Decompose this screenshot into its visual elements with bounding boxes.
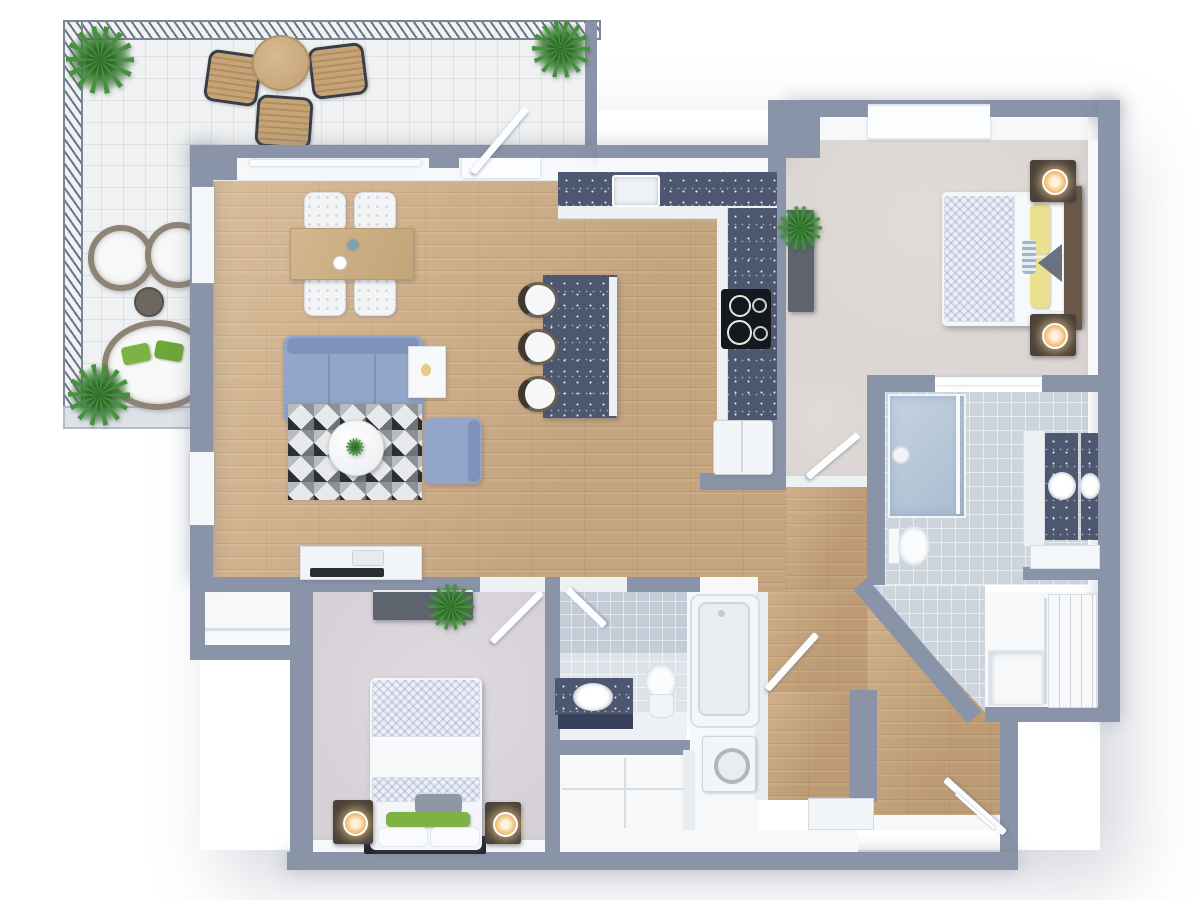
bed-pillow-white xyxy=(430,827,480,847)
cooktop-burner xyxy=(727,320,752,345)
balcony-window xyxy=(250,160,420,166)
wall-post xyxy=(429,145,459,168)
vanity-sink xyxy=(1048,472,1076,500)
wall-post xyxy=(190,145,237,180)
potted-plant xyxy=(532,20,590,78)
bar-stool xyxy=(518,376,558,412)
table-vase xyxy=(348,240,358,250)
island-face xyxy=(609,277,617,416)
shower-head xyxy=(892,446,910,464)
storage-divider xyxy=(624,758,626,828)
kitchen-sink xyxy=(612,175,660,207)
closet-floor xyxy=(205,592,290,648)
nightstand-lamp xyxy=(493,812,518,837)
side-table-decor xyxy=(421,364,431,376)
cooktop-burner xyxy=(729,295,751,317)
hall-closet-floor xyxy=(767,692,850,800)
cooktop-burner xyxy=(752,298,767,313)
refrigerator xyxy=(713,420,773,475)
vestibule-threshold xyxy=(786,476,867,487)
wall-top-living xyxy=(190,145,597,158)
hall-floor xyxy=(786,485,867,592)
tv xyxy=(310,568,384,577)
west-window xyxy=(190,452,214,525)
bath2-vanity-lower xyxy=(558,714,633,729)
wall-bathroom2-bottom xyxy=(545,740,690,755)
west-balcony-door xyxy=(192,187,214,283)
console-decor xyxy=(352,550,384,566)
bed-pillow-white xyxy=(378,827,428,847)
headboard xyxy=(1064,186,1082,330)
kitchen-counter-top xyxy=(558,172,777,208)
bathtub-basin xyxy=(698,602,750,716)
bed-fold xyxy=(372,736,480,778)
wall-face-tub-top xyxy=(700,577,758,592)
washer-door xyxy=(714,748,750,784)
wicker-chair xyxy=(88,225,154,291)
wall-bedroom2-west xyxy=(290,580,313,852)
wall-laundry-divider xyxy=(683,750,695,830)
wall-bedroom1-bottom xyxy=(1042,375,1098,392)
bedroom1-window xyxy=(868,104,990,140)
nightstand-lamp xyxy=(343,811,368,836)
outdoor-chair xyxy=(307,42,369,100)
sofa-back xyxy=(287,338,419,354)
bathtub-drain xyxy=(718,610,725,617)
wall-face-bottom xyxy=(558,830,858,852)
toilet-bowl xyxy=(898,526,930,566)
balcony-railing-top xyxy=(63,20,601,40)
wall-face-east xyxy=(1088,140,1098,378)
table-plate xyxy=(333,256,347,270)
cooktop-burner xyxy=(753,326,768,341)
outdoor-chair xyxy=(254,94,313,150)
wall-closet-south xyxy=(190,645,290,660)
nightstand-lamp xyxy=(1042,169,1068,195)
dining-chair xyxy=(304,276,346,316)
vanity-sink xyxy=(1080,473,1100,499)
dresser-plant xyxy=(428,584,474,630)
potted-plant xyxy=(68,364,130,426)
refrigerator-seam xyxy=(741,421,743,472)
bed-pillow-green xyxy=(386,812,470,827)
sideboard-plant xyxy=(778,206,822,250)
bar-stool xyxy=(518,329,558,365)
wall-bedroom1-bottom xyxy=(867,375,935,392)
dining-table xyxy=(290,228,414,280)
potted-plant xyxy=(66,26,134,94)
coffee-table-plant xyxy=(346,438,364,456)
outdoor-table xyxy=(252,35,310,91)
hall-closet-shelf xyxy=(808,798,874,830)
bed-pillow-accent xyxy=(1022,240,1036,274)
wall-east xyxy=(1098,100,1120,722)
wall-bottom xyxy=(287,852,1018,870)
wall-corner xyxy=(768,100,820,158)
vanity-cabinet xyxy=(1023,430,1045,547)
bedroom2-door-threshold xyxy=(480,577,545,592)
bed-duvet xyxy=(944,196,1018,322)
wall-hallcloset-east xyxy=(850,690,877,802)
side-table xyxy=(134,287,164,317)
bath2-sink xyxy=(573,683,613,711)
dining-chair xyxy=(304,192,346,232)
wall-entry-east xyxy=(1000,707,1018,870)
wall-bath-west xyxy=(867,392,885,585)
armchair-back xyxy=(468,420,480,482)
dining-chair xyxy=(354,276,396,316)
closet-bench xyxy=(988,650,1044,706)
floor-plan-render xyxy=(0,0,1200,900)
wardrobe xyxy=(1048,594,1097,708)
nightstand-lamp xyxy=(1042,323,1068,349)
closet-rod xyxy=(1044,598,1047,704)
bath2-toilet-seat xyxy=(649,694,674,718)
bed-pillow-gray xyxy=(415,794,462,814)
dining-chair xyxy=(354,192,396,232)
vanity-bench xyxy=(1030,545,1100,569)
wall-top-kitchen xyxy=(597,145,786,158)
shower-glass xyxy=(956,394,960,514)
closet-shelf-edge xyxy=(205,628,290,631)
storage-shelf-lines xyxy=(562,758,690,828)
bar-stool xyxy=(518,282,558,318)
bath-partition xyxy=(935,377,1042,385)
wall-living-bottom xyxy=(627,577,700,592)
wall-vestibule-south xyxy=(700,473,786,490)
wall-face-top-kitchen xyxy=(597,158,786,172)
